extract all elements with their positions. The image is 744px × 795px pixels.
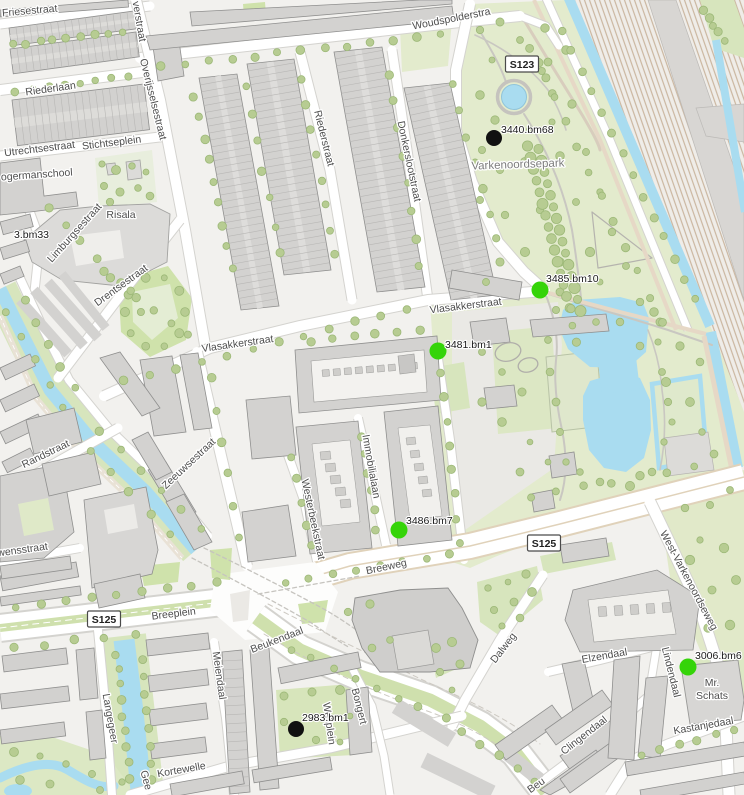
svg-text:Risala: Risala	[106, 209, 135, 221]
svg-text:S123: S123	[510, 59, 535, 71]
svg-text:2983.bm1: 2983.bm1	[302, 712, 349, 724]
svg-text:S125: S125	[92, 614, 117, 626]
svg-text:3486.bm7: 3486.bm7	[406, 515, 453, 527]
svg-text:3485.bm10: 3485.bm10	[546, 273, 599, 285]
svg-text:S125: S125	[532, 538, 557, 550]
svg-text:3481.bm1: 3481.bm1	[445, 339, 492, 351]
svg-text:3440.bm68: 3440.bm68	[501, 124, 554, 136]
svg-text:Schats: Schats	[696, 690, 728, 702]
svg-text:Mr.: Mr.	[705, 677, 720, 689]
svg-text:3006.bm6: 3006.bm6	[695, 650, 742, 662]
svg-text:3.bm33: 3.bm33	[14, 229, 49, 241]
